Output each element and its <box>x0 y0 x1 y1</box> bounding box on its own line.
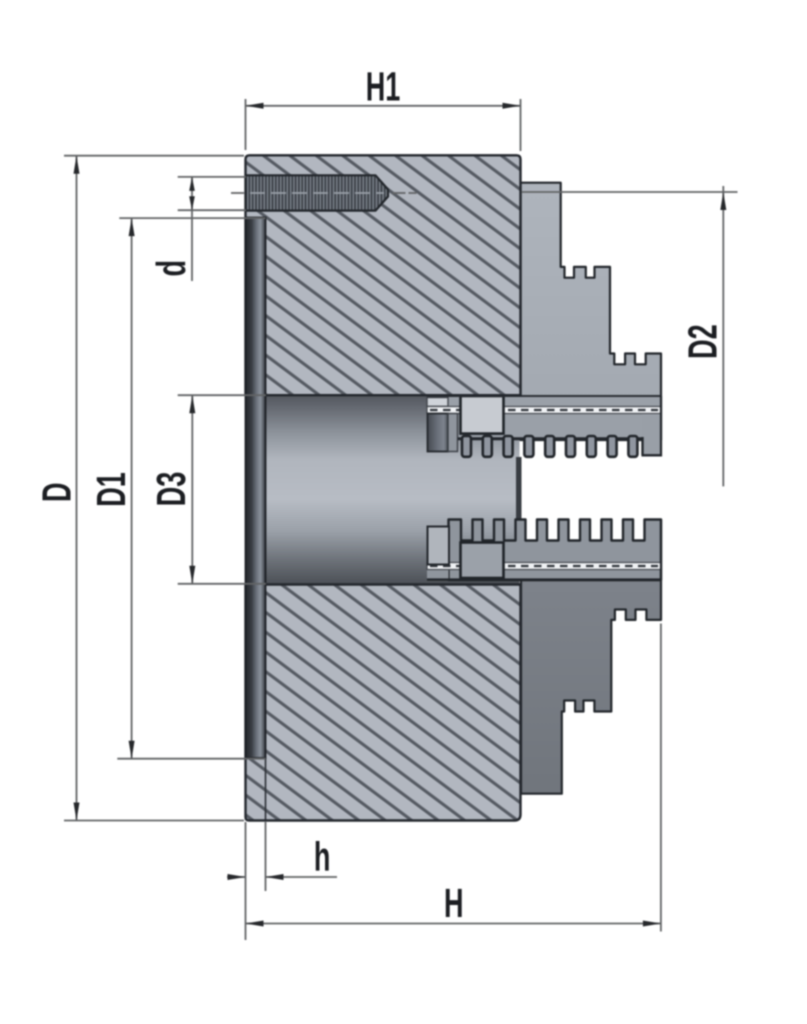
svg-text:d: d <box>149 260 194 277</box>
svg-text:D1: D1 <box>90 472 135 507</box>
svg-text:D: D <box>35 482 80 502</box>
svg-text:H1: H1 <box>366 65 401 110</box>
svg-text:D2: D2 <box>681 324 726 359</box>
svg-text:H: H <box>444 881 464 926</box>
svg-text:D3: D3 <box>150 472 195 507</box>
svg-text:h: h <box>314 835 331 880</box>
